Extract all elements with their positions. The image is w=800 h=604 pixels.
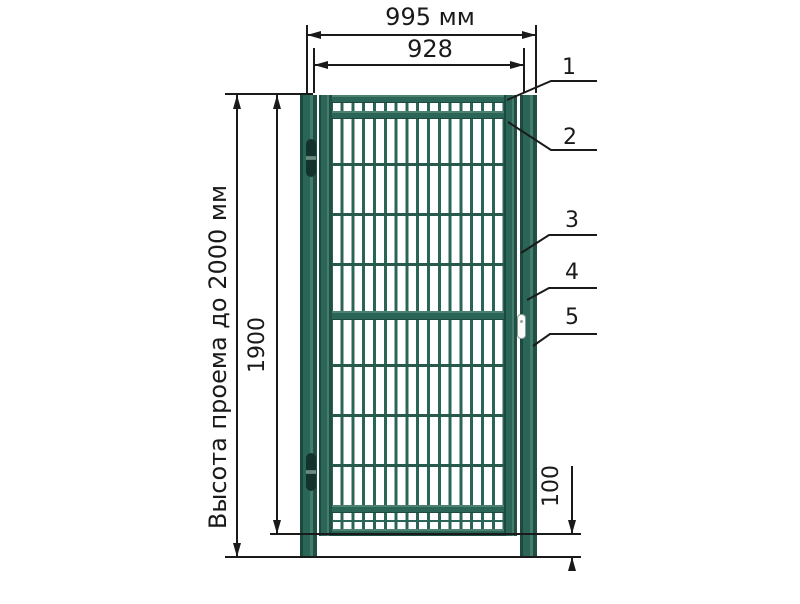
hinge-top-icon: [306, 139, 316, 177]
bottom-cell-row-2: [319, 522, 517, 529]
callout-number-4: 4: [557, 261, 587, 285]
dim-label-width-outer: 995 мм: [368, 4, 492, 30]
mesh-panel-upper: [319, 127, 517, 311]
dim-label-bottom-gap: 100: [540, 465, 564, 507]
leaf-left-frame: [319, 95, 332, 536]
bottom-cell-row-1: [319, 513, 517, 520]
lock-cylinder-icon: [517, 314, 526, 339]
middle-rail: [319, 311, 517, 320]
leaf-right-frame: [504, 95, 517, 536]
gate-technical-drawing: 995 мм 928 Высота проема до 2000 мм 1900…: [0, 0, 800, 604]
dim-label-width-inner: 928: [370, 36, 490, 62]
top-cell-row-2: [319, 119, 517, 127]
top-cell-row-1: [319, 103, 517, 111]
leaf-top-rail: [319, 95, 517, 103]
top-mini-rail: [319, 111, 517, 119]
callout-number-1: 1: [554, 56, 584, 80]
hinge-bottom-icon: [306, 453, 316, 491]
gate-leaf: [319, 95, 517, 536]
dim-bottom-gap-lines: [568, 466, 576, 571]
dim-label-height-inner: 1900: [246, 317, 270, 373]
callout-number-3: 3: [557, 209, 587, 233]
callout-number-2: 2: [555, 126, 585, 150]
dim-label-height-outer: Высота проема до 2000 мм: [205, 185, 231, 529]
callout-number-5: 5: [557, 306, 587, 330]
bottom-mini-rail: [319, 505, 517, 513]
mesh-panel-lower: [319, 320, 517, 505]
leaf-bottom-rail: [319, 529, 517, 536]
